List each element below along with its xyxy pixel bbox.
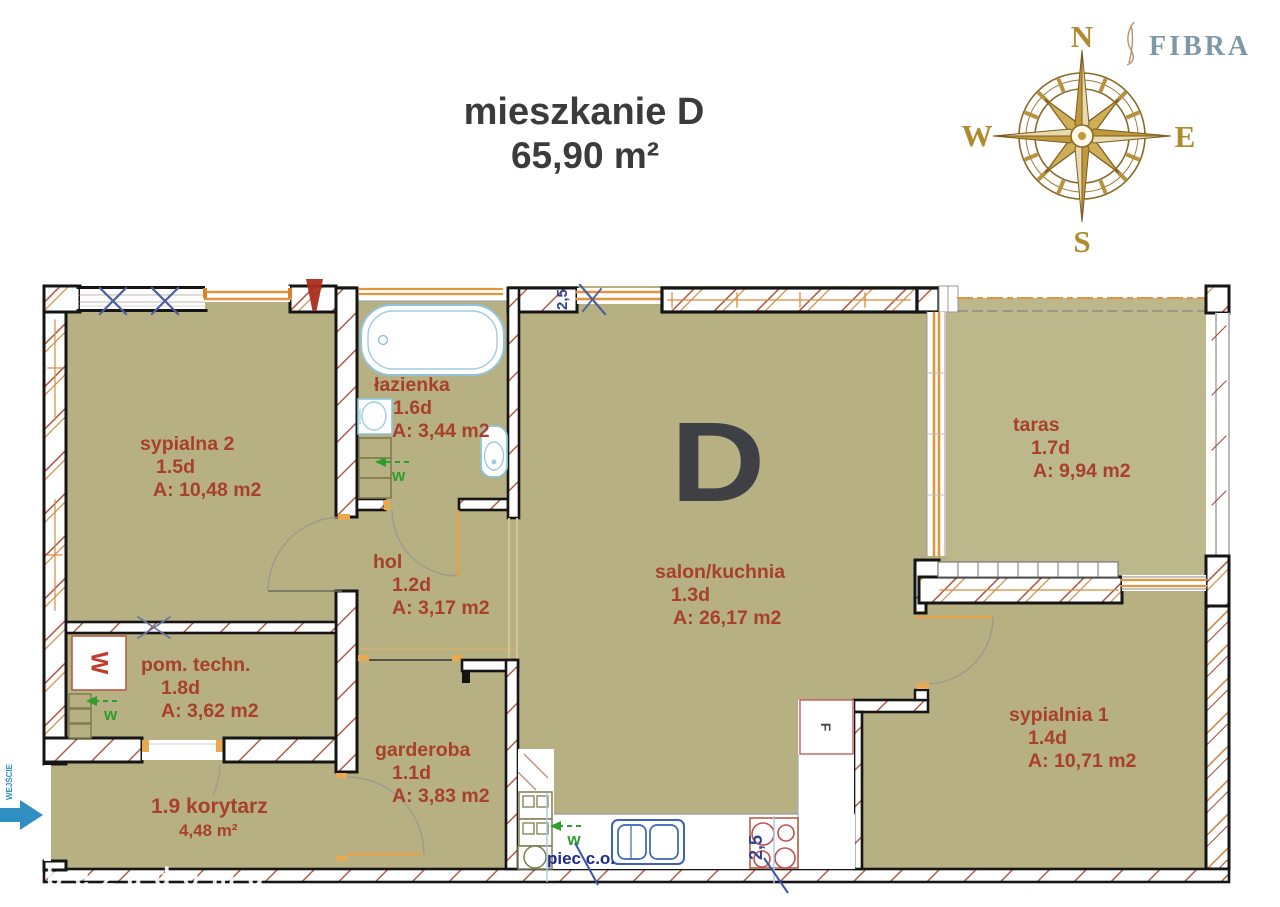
svg-text:1.4d: 1.4d bbox=[1028, 727, 1067, 749]
svg-text:2,5: 2,5 bbox=[554, 289, 571, 310]
svg-text:mieszkanie D: mieszkanie D bbox=[464, 91, 705, 133]
svg-text:E: E bbox=[1175, 119, 1196, 154]
svg-text:2,5: 2,5 bbox=[746, 835, 766, 860]
svg-text:sypialnia 1: sypialnia 1 bbox=[1009, 704, 1109, 726]
svg-text:bezadomu: bezadomu bbox=[46, 862, 276, 892]
svg-text:hol: hol bbox=[373, 551, 402, 573]
svg-text:1.9 korytarz: 1.9 korytarz bbox=[151, 795, 268, 818]
svg-text:A: 3,83 m2: A: 3,83 m2 bbox=[392, 785, 490, 807]
svg-text:łazienka: łazienka bbox=[374, 374, 450, 396]
svg-text:piec c.o.: piec c.o. bbox=[547, 849, 615, 868]
svg-text:1.3d: 1.3d bbox=[671, 584, 710, 606]
svg-text:1.6d: 1.6d bbox=[393, 397, 432, 419]
svg-text:A: 10,48 m2: A: 10,48 m2 bbox=[153, 479, 262, 501]
svg-text:w: w bbox=[103, 705, 118, 724]
svg-text:N: N bbox=[1071, 19, 1093, 54]
svg-text:1.1d: 1.1d bbox=[392, 762, 431, 784]
svg-text:A: 10,71 m2: A: 10,71 m2 bbox=[1028, 750, 1137, 772]
svg-text:W: W bbox=[86, 652, 113, 675]
svg-text:WEJŚCIE: WEJŚCIE bbox=[5, 763, 14, 800]
svg-text:1.2d: 1.2d bbox=[392, 574, 431, 596]
svg-text:1.8d: 1.8d bbox=[161, 677, 200, 699]
svg-text:w: w bbox=[391, 466, 406, 485]
svg-text:4,48 m²: 4,48 m² bbox=[179, 821, 238, 840]
svg-text:w: w bbox=[566, 830, 581, 849]
svg-text:D: D bbox=[671, 398, 765, 525]
svg-text:garderoba: garderoba bbox=[375, 739, 471, 761]
svg-text:A: 3,62 m2: A: 3,62 m2 bbox=[161, 700, 259, 722]
svg-text:A: 9,94 m2: A: 9,94 m2 bbox=[1033, 460, 1131, 482]
svg-text:taras: taras bbox=[1013, 414, 1060, 436]
svg-text:1.7d: 1.7d bbox=[1031, 437, 1070, 459]
svg-text:1.5d: 1.5d bbox=[156, 456, 195, 478]
svg-text:pom. techn.: pom. techn. bbox=[141, 654, 250, 676]
svg-text:S: S bbox=[1073, 224, 1090, 259]
svg-text:sypialna 2: sypialna 2 bbox=[140, 433, 234, 455]
svg-text:A: 26,17 m2: A: 26,17 m2 bbox=[673, 607, 782, 629]
svg-text:A: 3,44 m2: A: 3,44 m2 bbox=[392, 420, 490, 442]
svg-text:65,90 m²: 65,90 m² bbox=[511, 135, 659, 176]
svg-text:FIBRA: FIBRA bbox=[1149, 31, 1251, 62]
svg-text:A: 3,17 m2: A: 3,17 m2 bbox=[392, 597, 490, 619]
svg-text:W: W bbox=[962, 118, 993, 153]
svg-text:salon/kuchnia: salon/kuchnia bbox=[655, 561, 785, 583]
svg-text:F: F bbox=[818, 723, 834, 732]
